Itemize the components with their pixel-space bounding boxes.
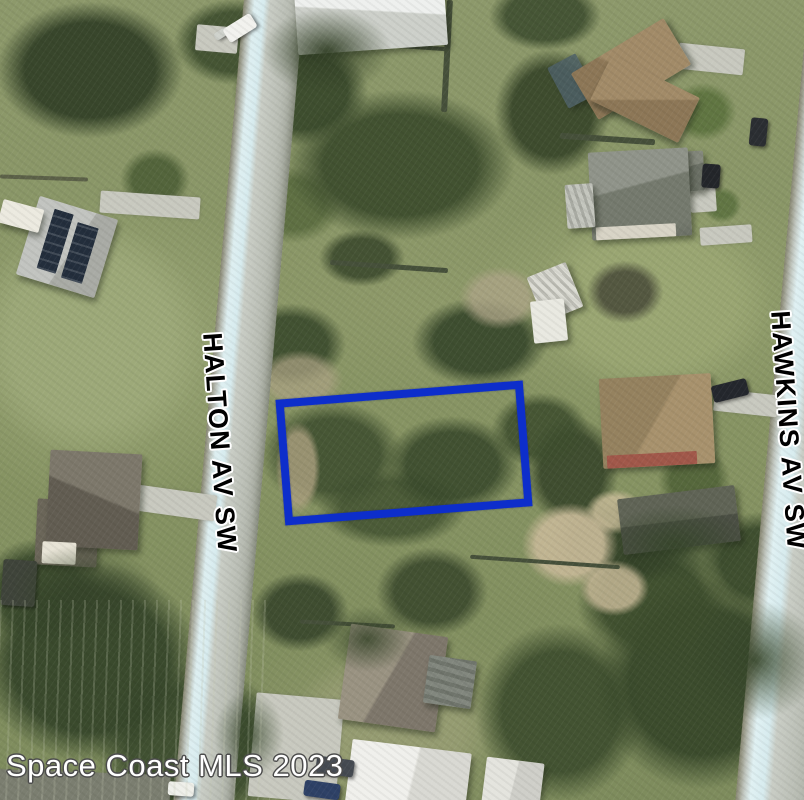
- house-roof-left: [46, 450, 143, 551]
- parcel-boundary: [275, 380, 532, 525]
- house-roof-gray: [588, 147, 692, 240]
- shed-roof: [564, 183, 595, 229]
- car: [701, 163, 721, 188]
- shed-roof: [481, 757, 544, 800]
- car: [749, 117, 769, 147]
- tree-canopy: [600, 505, 750, 585]
- shed-roof: [530, 298, 568, 343]
- tree-canopy: [262, 8, 392, 94]
- driveway: [699, 224, 752, 246]
- watermark: Space Coast MLS 2023: [6, 748, 343, 784]
- shed-roof: [423, 655, 477, 709]
- aerial-map: HALTON AV SW HAWKINS AV SW Space Coast M…: [0, 0, 804, 800]
- tree-canopy: [322, 606, 412, 672]
- house-roof-tan: [599, 373, 716, 469]
